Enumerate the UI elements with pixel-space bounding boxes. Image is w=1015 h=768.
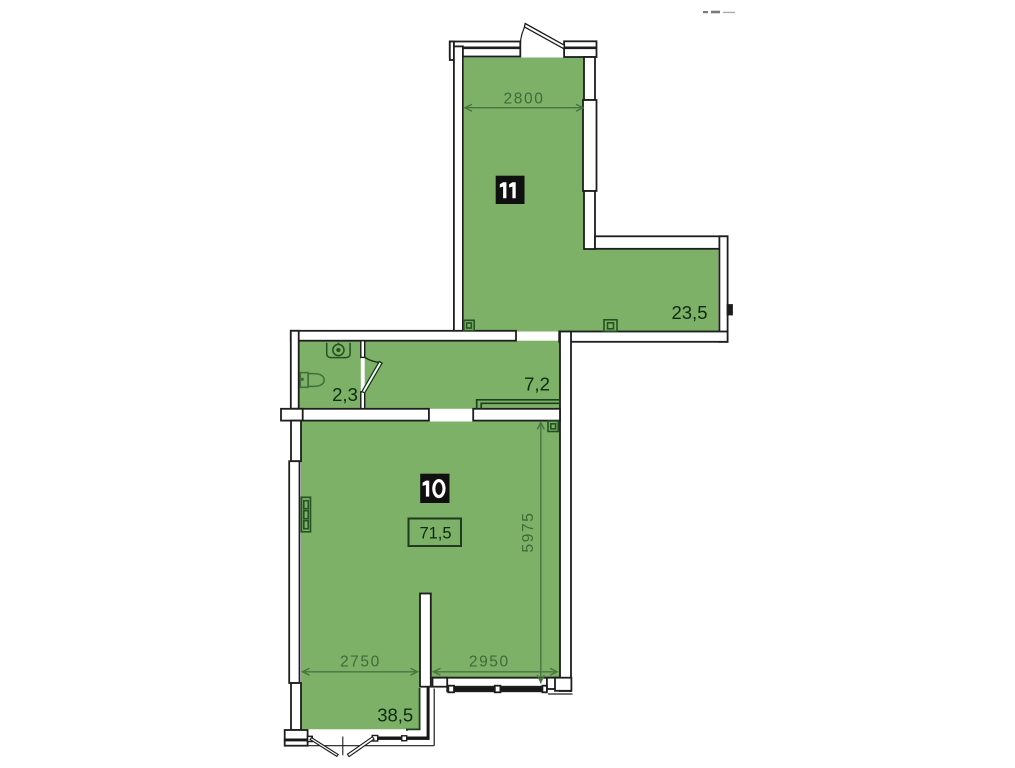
svg-text:5975: 5975 bbox=[520, 512, 537, 553]
svg-text:2750: 2750 bbox=[340, 654, 381, 671]
svg-text:2950: 2950 bbox=[469, 654, 510, 671]
svg-text:38,5: 38,5 bbox=[377, 705, 413, 726]
svg-text:2,3: 2,3 bbox=[332, 384, 358, 405]
svg-text:71,5: 71,5 bbox=[419, 525, 451, 543]
svg-text:7,2: 7,2 bbox=[524, 374, 550, 395]
svg-text:23,5: 23,5 bbox=[671, 302, 707, 323]
svg-text:2800: 2800 bbox=[504, 91, 545, 108]
